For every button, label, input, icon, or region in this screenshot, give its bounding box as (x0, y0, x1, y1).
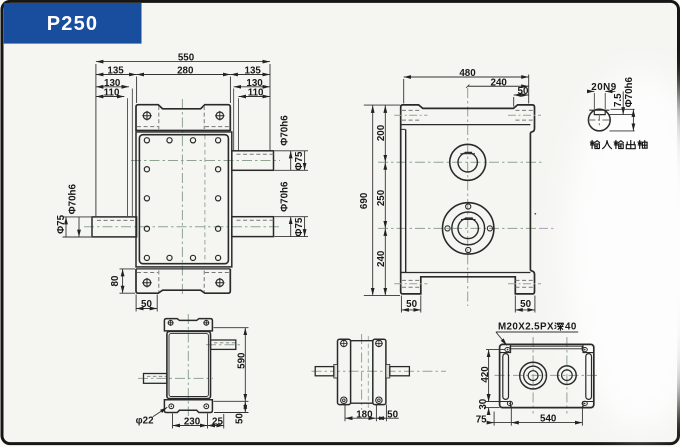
svg-text:135: 135 (107, 66, 124, 77)
svg-text:50: 50 (234, 413, 245, 424)
svg-text:φ22: φ22 (136, 416, 154, 427)
svg-text:P250: P250 (47, 13, 99, 35)
svg-text:420: 420 (480, 366, 491, 383)
svg-text:480: 480 (459, 68, 476, 79)
svg-text:200: 200 (376, 124, 387, 141)
svg-text:110: 110 (104, 88, 120, 99)
svg-text:Φ75: Φ75 (56, 214, 67, 233)
svg-text:Φ75: Φ75 (294, 217, 305, 236)
svg-text:40: 40 (565, 322, 577, 333)
svg-text:135: 135 (245, 66, 262, 77)
svg-text:7.5: 7.5 (613, 93, 624, 107)
svg-text:110: 110 (248, 88, 264, 99)
svg-text:75: 75 (476, 415, 487, 426)
svg-text:25: 25 (212, 416, 223, 427)
svg-text:Φ70h6: Φ70h6 (280, 115, 291, 146)
svg-text:180: 180 (356, 409, 373, 420)
svg-text:550: 550 (178, 53, 195, 64)
svg-text:30: 30 (478, 398, 489, 409)
svg-text:Φ70h6: Φ70h6 (280, 181, 291, 212)
svg-text:280: 280 (177, 66, 194, 77)
svg-text:230: 230 (184, 416, 201, 427)
svg-text:540: 540 (540, 414, 557, 425)
svg-text:20N9: 20N9 (591, 82, 616, 93)
svg-text:Φ75: Φ75 (294, 151, 305, 170)
svg-text:50: 50 (406, 299, 417, 310)
svg-text:50: 50 (518, 86, 529, 97)
svg-text:Φ70h6: Φ70h6 (68, 183, 79, 214)
svg-text:50: 50 (387, 409, 398, 420)
svg-text:590: 590 (236, 352, 247, 369)
svg-text:690: 690 (359, 192, 370, 209)
svg-text:M20X2.5PX: M20X2.5PX (498, 322, 554, 333)
svg-text:50: 50 (520, 299, 531, 310)
svg-text:240: 240 (376, 250, 387, 267)
svg-text:80: 80 (110, 275, 121, 286)
svg-text:Φ70h6: Φ70h6 (624, 76, 635, 107)
svg-text:240: 240 (491, 77, 508, 88)
svg-text:250: 250 (376, 189, 387, 206)
svg-text:50: 50 (141, 299, 152, 310)
